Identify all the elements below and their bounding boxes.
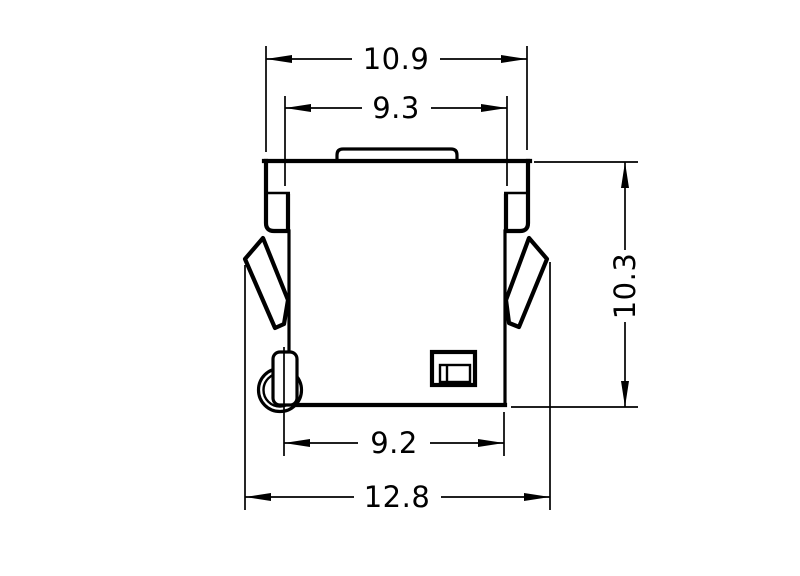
dim-label-height: 10.3 [608, 253, 642, 320]
arrow-up [621, 162, 629, 188]
arrow-right [524, 493, 550, 501]
dim-label-top-inner: 9.3 [372, 91, 420, 125]
arrow-left [266, 55, 292, 63]
latch-window-outer [432, 352, 475, 385]
component-front-view [245, 149, 547, 412]
latch-window-inner [440, 365, 470, 382]
dim-label-top-outer: 10.9 [363, 42, 430, 76]
arrow-left [245, 493, 271, 501]
dim-label-bottom-inner: 9.2 [370, 426, 418, 460]
dimensions: 10.9 9.3 10.3 [245, 42, 642, 514]
mounting-wing-right [506, 238, 547, 327]
arrow-right [481, 104, 507, 112]
drawing-canvas: 10.9 9.3 10.3 [0, 0, 800, 576]
pin-slot [273, 352, 297, 405]
arrow-right [478, 439, 504, 447]
arrow-right [501, 55, 527, 63]
dim-label-bottom-outer: 12.8 [364, 480, 431, 514]
arrow-down [621, 381, 629, 407]
flange-right-wall [506, 161, 528, 231]
mounting-wing-left [245, 238, 288, 328]
arrow-left [285, 104, 311, 112]
arrow-left [284, 439, 310, 447]
dimension-top-inner-width: 9.3 [285, 91, 507, 186]
technical-drawing: 10.9 9.3 10.3 [0, 0, 800, 576]
